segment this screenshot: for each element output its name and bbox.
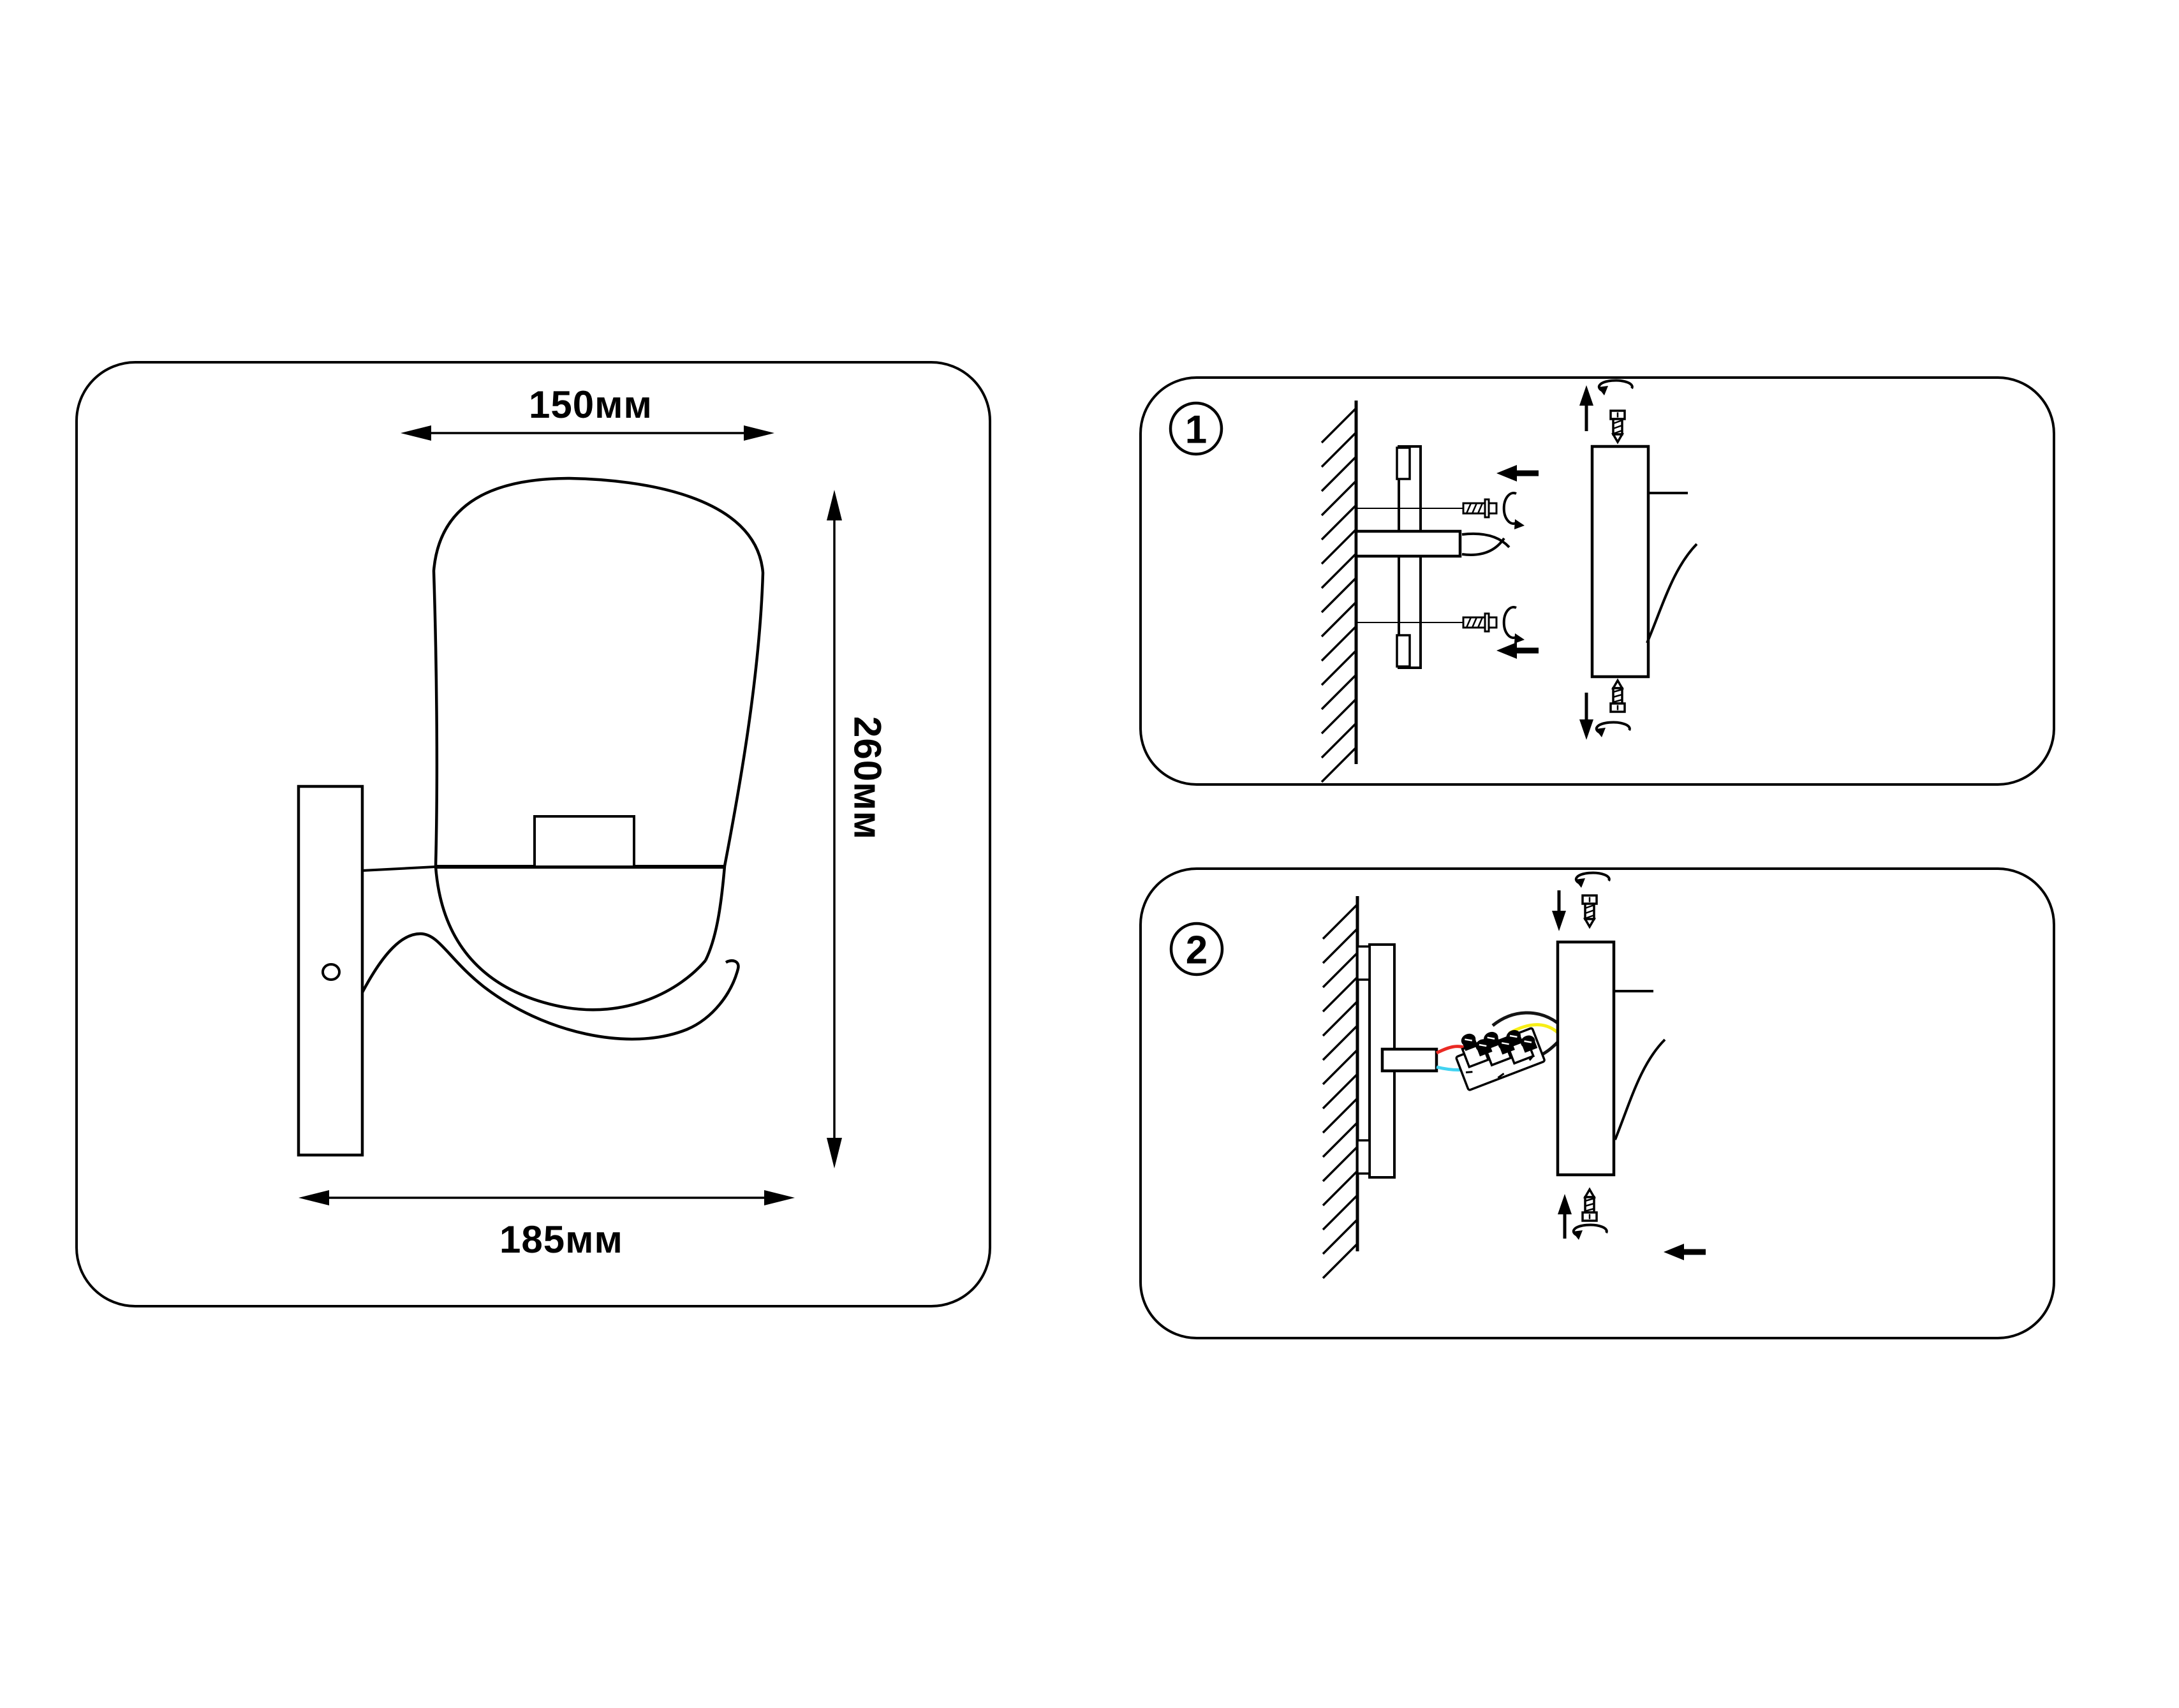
instruction-sheet: 150мм 260мм 185мм 1 [0,0,2179,1708]
step-number-label: 2 [1186,929,1208,973]
bracket-tab-bottom [1357,1140,1370,1174]
dimension-width-label: 150мм [529,383,653,426]
bracket-tab-top [1357,946,1370,980]
dimension-depth-label: 185мм [499,1218,623,1261]
panel-step-1: 1 [1141,378,2054,784]
panel-dimensions: 150мм 260мм 185мм [77,362,990,1306]
diagram-canvas: 150мм 260мм 185мм 1 [0,0,2179,1708]
panel-step-2: 2 [1141,869,2054,1338]
bracket-junction-box [1356,531,1460,556]
lamp-plate-screw-hole [323,964,339,980]
lamp-socket-block [535,816,634,867]
step2-badge: 2 [1171,924,1222,975]
bracket-junction-box [1382,1049,1437,1071]
step1-badge: 1 [1171,403,1222,454]
step-number-label: 1 [1185,408,1207,452]
lamp-body-plate [1558,942,1614,1175]
lamp-body-plate [1592,446,1648,677]
bracket-tab-top [1397,448,1410,479]
dimension-height-label: 260мм [846,716,889,840]
bracket-tab-bottom [1397,635,1410,666]
